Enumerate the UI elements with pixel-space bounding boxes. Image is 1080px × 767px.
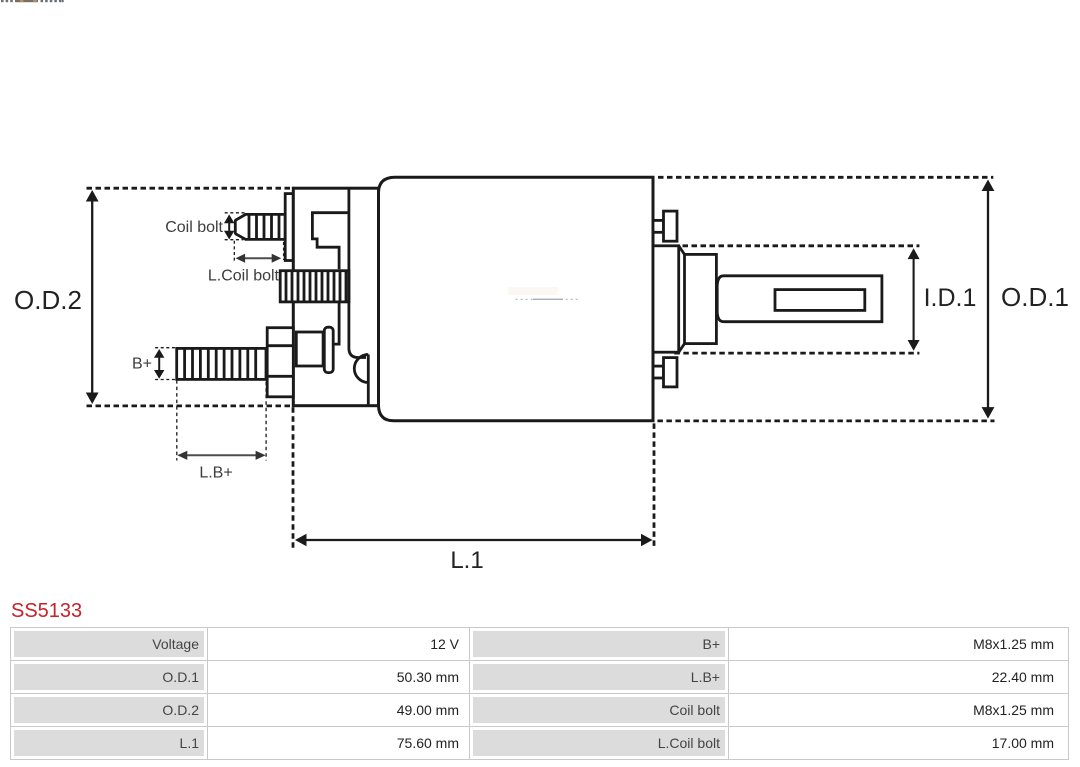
svg-text:L.Coil bolt: L.Coil bolt bbox=[208, 268, 280, 285]
svg-text:B+: B+ bbox=[132, 356, 152, 373]
svg-text:I.D.1: I.D.1 bbox=[924, 284, 977, 312]
svg-text:O.D.1: O.D.1 bbox=[1001, 282, 1069, 312]
svg-text:Coil bolt: Coil bolt bbox=[165, 219, 223, 236]
svg-text:O.D.2: O.D.2 bbox=[14, 285, 82, 315]
svg-text:L.B+: L.B+ bbox=[199, 465, 232, 482]
svg-text:L.1: L.1 bbox=[450, 547, 483, 574]
